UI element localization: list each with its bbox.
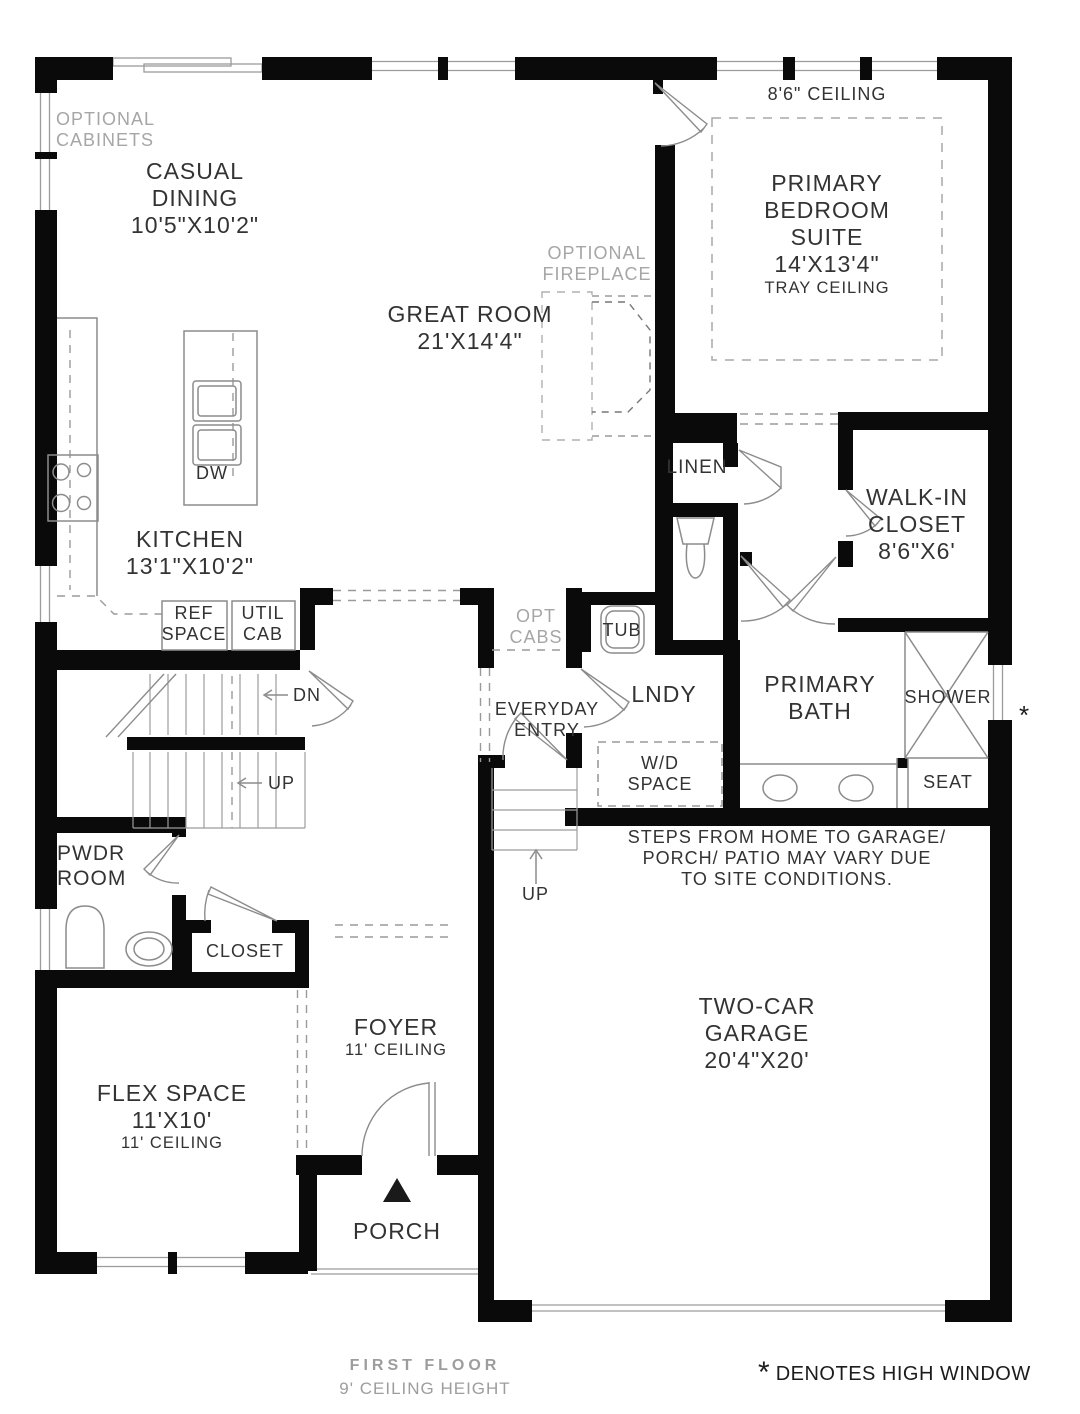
footer-high-window-note: * DENOTES HIGH WINDOW xyxy=(758,1358,1031,1388)
label-lndy: LNDY xyxy=(631,681,696,708)
bath-toilet-icon xyxy=(677,518,714,544)
label-kitchen: KITCHEN 13'1"X10'2" xyxy=(126,526,254,580)
garage-steps xyxy=(492,768,577,850)
label-casual-dining: CASUAL DINING 10'5"X10'2" xyxy=(131,158,259,239)
asterisk-icon: * xyxy=(758,1358,770,1388)
footer-floor-title: FIRST FLOOR xyxy=(350,1357,501,1376)
label-seat: SEAT xyxy=(923,772,973,793)
label-primary-bedroom: PRIMARY BEDROOM SUITE 14'X13'4" TRAY CEI… xyxy=(764,170,890,298)
label-porch: PORCH xyxy=(353,1218,441,1245)
label-closet: CLOSET xyxy=(206,941,284,962)
label-flex-space: FLEX SPACE 11'X10' 11' CEILING xyxy=(97,1080,247,1154)
label-dn: DN xyxy=(293,685,321,706)
label-linen: LINEN xyxy=(667,457,728,479)
kitchen-fixtures xyxy=(48,318,295,650)
staircase xyxy=(106,674,305,828)
high-window-asterisk: * xyxy=(1019,700,1029,731)
footer-ceiling-height: 9' CEILING HEIGHT xyxy=(339,1379,510,1399)
entry-arrow-icon xyxy=(383,1178,411,1202)
optional-fireplace-outline xyxy=(542,292,655,440)
label-pwdr-room: PWDR ROOM xyxy=(57,842,126,892)
vanity-sink-icon2 xyxy=(839,775,873,801)
label-foyer: FOYER 11' CEILING xyxy=(345,1014,447,1061)
label-everyday-entry: EVERYDAY ENTRY xyxy=(495,699,599,741)
label-great-room: GREAT ROOM 21'X14'4" xyxy=(387,301,552,355)
pwdr-toilet-icon xyxy=(66,906,104,968)
label-walk-in-closet: WALK-IN CLOSET 8'6"X6' xyxy=(866,484,968,565)
label-shower: SHOWER xyxy=(905,687,992,708)
dishwasher-icon xyxy=(193,381,241,421)
pwdr-sink-icon xyxy=(126,932,172,966)
label-dw: DW xyxy=(196,463,228,484)
label-primary-bath: PRIMARY BATH xyxy=(764,671,875,725)
label-opt-cabs: OPT CABS xyxy=(509,606,562,648)
label-up-stairs: UP xyxy=(268,773,295,794)
label-ref-space: REF SPACE xyxy=(162,603,227,645)
garage-up-arrow-icon xyxy=(530,850,542,884)
vanity-sink-icon xyxy=(763,775,797,801)
label-optional-cabinets: OPTIONAL CABINETS xyxy=(56,109,155,151)
kitchen-counter xyxy=(57,318,97,596)
label-up-garage: UP xyxy=(522,884,549,905)
label-steps-note: STEPS FROM HOME TO GARAGE/ PORCH/ PATIO … xyxy=(628,827,946,890)
label-wd-space: W/D SPACE xyxy=(628,753,693,795)
floor-plan: OPTIONAL CABINETS CASUAL DINING 10'5"X10… xyxy=(0,0,1080,1414)
label-tub: TUB xyxy=(603,620,642,641)
label-util-cab: UTIL CAB xyxy=(241,603,284,645)
label-optional-fireplace: OPTIONAL FIREPLACE xyxy=(542,243,651,285)
label-garage: TWO-CAR GARAGE 20'4"X20' xyxy=(699,993,816,1074)
label-bedroom-ceiling: 8'6" CEILING xyxy=(768,84,887,105)
